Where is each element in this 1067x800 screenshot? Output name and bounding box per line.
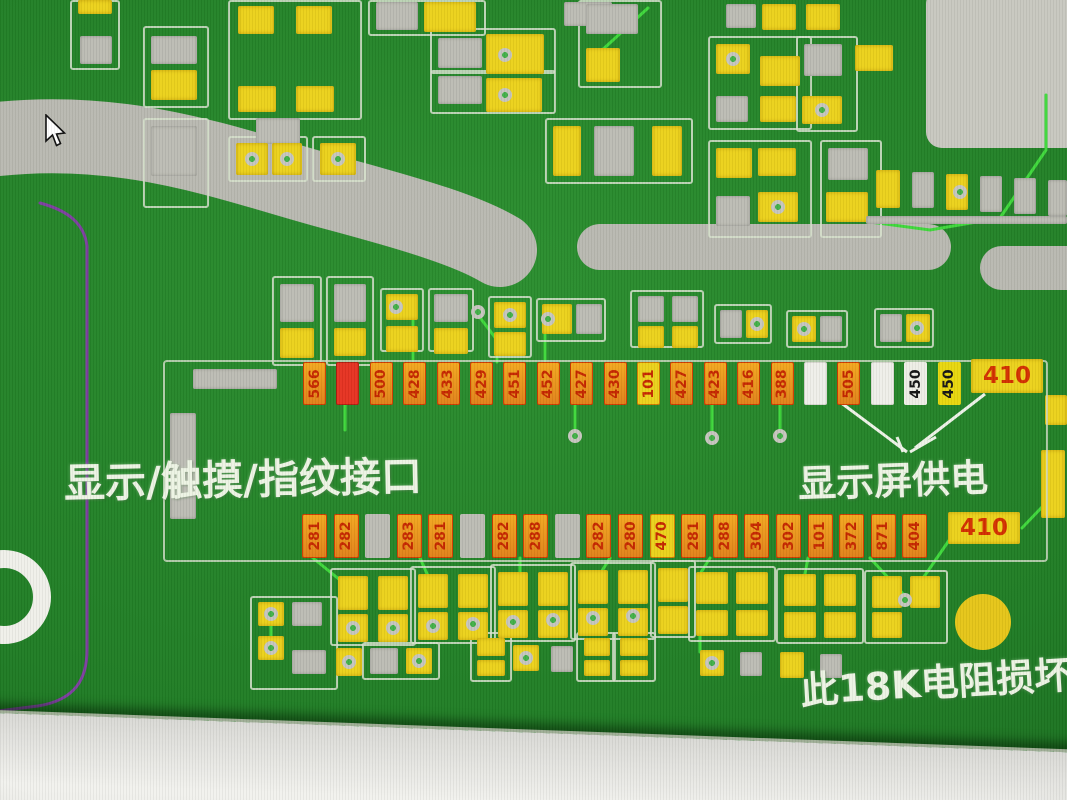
pin-label: 428 bbox=[408, 369, 422, 398]
boardview-screen: 5665004284334294514524274301014274234163… bbox=[0, 0, 1067, 800]
pin-label: 450 bbox=[909, 369, 923, 398]
pin-label: 500 bbox=[374, 369, 388, 398]
connector-pin-282[interactable]: 282 bbox=[586, 514, 611, 558]
connector-pin[interactable] bbox=[336, 362, 359, 405]
connector-pin[interactable] bbox=[365, 514, 390, 558]
connector-pin-288[interactable]: 288 bbox=[713, 514, 738, 558]
pin-label: 283 bbox=[402, 521, 416, 550]
connector-pin-280[interactable]: 280 bbox=[618, 514, 643, 558]
connector-pin-282[interactable]: 282 bbox=[492, 514, 517, 558]
pin-label: 451 bbox=[508, 369, 522, 398]
pin-label: 288 bbox=[529, 521, 543, 550]
pin-label: 101 bbox=[642, 369, 656, 398]
pin-label: 372 bbox=[845, 521, 859, 550]
connector-pin-566[interactable]: 566 bbox=[303, 362, 326, 405]
connector-pin-427[interactable]: 427 bbox=[570, 362, 593, 405]
connector-pin-451[interactable]: 451 bbox=[503, 362, 526, 405]
connector-pin-427[interactable]: 427 bbox=[670, 362, 693, 405]
pin-label: 505 bbox=[842, 369, 856, 398]
pin-label: 404 bbox=[908, 521, 922, 550]
connector-pin-423[interactable]: 423 bbox=[704, 362, 727, 405]
connector-pin-429[interactable]: 429 bbox=[470, 362, 493, 405]
pin-label: 388 bbox=[775, 369, 789, 398]
connector-pin-433[interactable]: 433 bbox=[437, 362, 460, 405]
connector-pin-388[interactable]: 388 bbox=[771, 362, 794, 405]
connector-pin-452[interactable]: 452 bbox=[537, 362, 560, 405]
connector-pin-505[interactable]: 505 bbox=[837, 362, 860, 405]
connector-pin-416[interactable]: 416 bbox=[737, 362, 760, 405]
connector-pin-288[interactable]: 288 bbox=[523, 514, 548, 558]
pin-label: 566 bbox=[308, 369, 322, 398]
pin-label: 302 bbox=[782, 521, 796, 550]
pin-label: 429 bbox=[475, 369, 489, 398]
pin-label: 281 bbox=[308, 521, 322, 550]
pin-label: 282 bbox=[339, 521, 353, 550]
pin-label: 288 bbox=[718, 521, 732, 550]
connector-pin-281[interactable]: 281 bbox=[428, 514, 453, 558]
connector-pin-101[interactable]: 101 bbox=[808, 514, 833, 558]
connector-pin-372[interactable]: 372 bbox=[839, 514, 864, 558]
pin-label: 427 bbox=[575, 369, 589, 398]
connector-pin-304[interactable]: 304 bbox=[744, 514, 769, 558]
pin-label: 450 bbox=[942, 369, 956, 398]
pin-label: 470 bbox=[655, 521, 669, 550]
power-annotation: 显示屏供电 bbox=[797, 447, 989, 509]
connector-pin-283[interactable]: 283 bbox=[397, 514, 422, 558]
pin-label: 871 bbox=[876, 521, 890, 550]
pin-label: 430 bbox=[608, 369, 622, 398]
net-label-410-top[interactable]: 410 bbox=[971, 359, 1043, 393]
pin-label: 427 bbox=[675, 369, 689, 398]
connector-pin-404[interactable]: 404 bbox=[902, 514, 927, 558]
connector-pin-871[interactable]: 871 bbox=[871, 514, 896, 558]
connector-pin-450[interactable]: 450 bbox=[938, 362, 961, 405]
connector-pin[interactable] bbox=[871, 362, 894, 405]
pin-label: 282 bbox=[497, 521, 511, 550]
pin-label: 304 bbox=[750, 521, 764, 550]
connector-pin-470[interactable]: 470 bbox=[650, 514, 675, 558]
connector-pin[interactable] bbox=[555, 514, 580, 558]
connector-pin-428[interactable]: 428 bbox=[403, 362, 426, 405]
connector-pin-450[interactable]: 450 bbox=[904, 362, 927, 405]
connector-pin-282[interactable]: 282 bbox=[334, 514, 359, 558]
connector-pin-500[interactable]: 500 bbox=[370, 362, 393, 405]
pin-label: 423 bbox=[708, 369, 722, 398]
connector-pin-281[interactable]: 281 bbox=[302, 514, 327, 558]
pin-label: 281 bbox=[687, 521, 701, 550]
connector-pin-281[interactable]: 281 bbox=[681, 514, 706, 558]
connector-pin-302[interactable]: 302 bbox=[776, 514, 801, 558]
pin-label: 280 bbox=[624, 521, 638, 550]
pin-label: 282 bbox=[592, 521, 606, 550]
pin-label: 433 bbox=[441, 369, 455, 398]
mouse-cursor-icon bbox=[45, 114, 71, 148]
connector-pin-101[interactable]: 101 bbox=[637, 362, 660, 405]
pin-label: 281 bbox=[434, 521, 448, 550]
connector-pin-430[interactable]: 430 bbox=[604, 362, 627, 405]
net-label-410-bottom[interactable]: 410 bbox=[948, 512, 1020, 544]
connector-pin[interactable] bbox=[804, 362, 827, 405]
connector-pin[interactable] bbox=[460, 514, 485, 558]
pin-label: 101 bbox=[813, 521, 827, 550]
pin-label: 452 bbox=[541, 369, 555, 398]
pin-label: 416 bbox=[742, 369, 756, 398]
interface-annotation: 显示/触摸/指纹接口 bbox=[63, 442, 422, 509]
